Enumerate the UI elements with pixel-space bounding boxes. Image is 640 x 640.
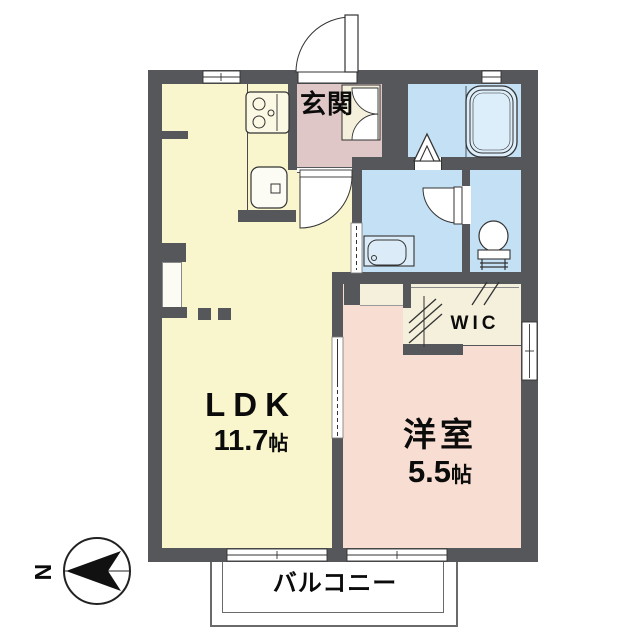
western-room-area-value: 5.5	[408, 454, 451, 489]
bathtub-icon	[466, 86, 517, 157]
gas-stove-icon	[246, 92, 289, 133]
window-top-ldk	[203, 71, 240, 83]
toilet-door-swing-icon	[423, 187, 462, 224]
north-arrow-icon	[64, 538, 130, 604]
ldk-area-value: 11.7	[214, 425, 269, 457]
floor-plan: 玄関 LDK 11.7帖 洋室 5.5帖 WIC バルコニー N	[0, 0, 640, 640]
wic-label: WIC	[443, 314, 507, 334]
kitchen-sink-icon	[251, 167, 287, 208]
ldk-area-unit: 帖	[268, 433, 288, 455]
compass-n-label: N	[31, 558, 59, 586]
hall-door-swing-icon	[300, 170, 352, 228]
ldk-area: 11.7帖	[192, 426, 310, 456]
washroom-sliding-door-icon	[351, 223, 362, 273]
window-right-western-room	[522, 322, 537, 380]
western-room-area-unit: 帖	[451, 464, 472, 487]
balcony-window-ldk	[227, 549, 327, 561]
western-room-sliding-door-icon	[332, 337, 343, 438]
window-top-bath	[482, 71, 501, 83]
ldk-label: LDK	[192, 388, 310, 423]
front-door-swing-icon	[296, 15, 358, 72]
balcony-label: バルコニー	[250, 571, 420, 596]
folding-bath-door-icon	[414, 134, 440, 161]
entrance-label: 玄関	[294, 91, 360, 118]
western-room-label: 洋室	[390, 418, 490, 453]
washbasin-icon	[364, 236, 414, 266]
toilet-icon	[478, 221, 510, 270]
front-doorway-opening	[298, 71, 357, 83]
balcony-window-western-room	[347, 549, 447, 561]
western-room-area: 5.5帖	[390, 456, 490, 489]
